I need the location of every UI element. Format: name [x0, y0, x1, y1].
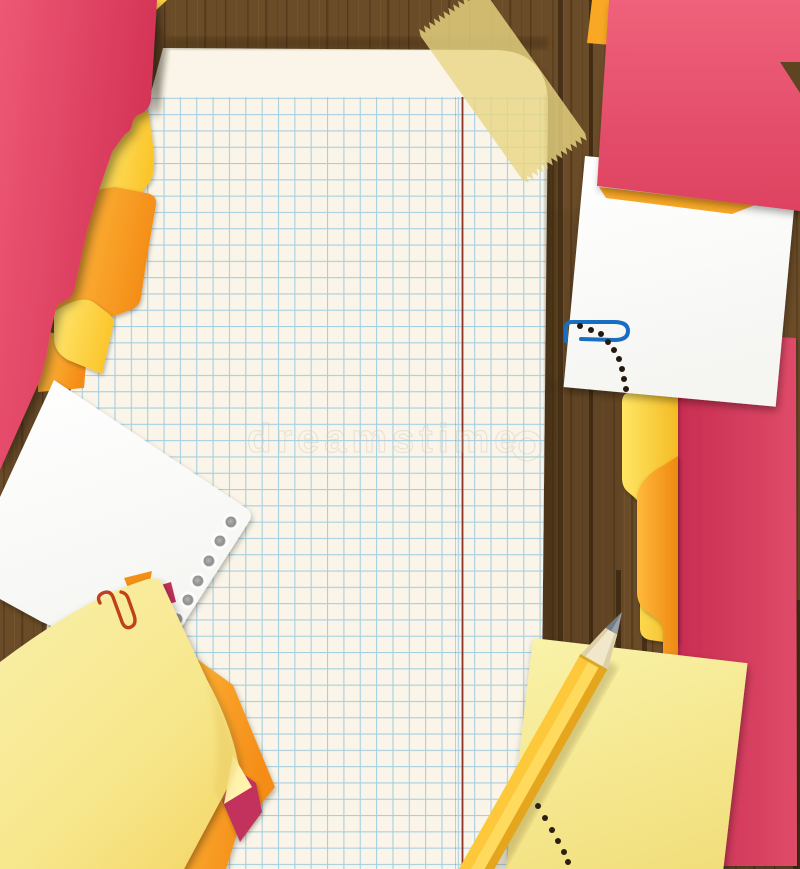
svg-text:dreamstime: dreamstime [247, 417, 522, 461]
